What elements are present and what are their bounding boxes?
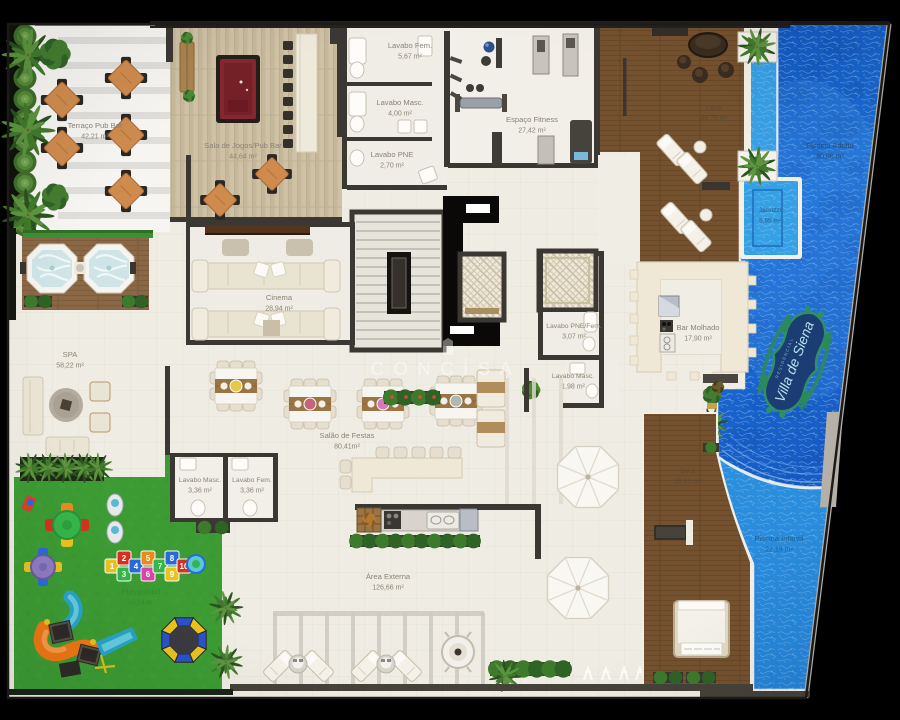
svg-text:CONCÍSA: CONCÍSA bbox=[371, 358, 522, 379]
